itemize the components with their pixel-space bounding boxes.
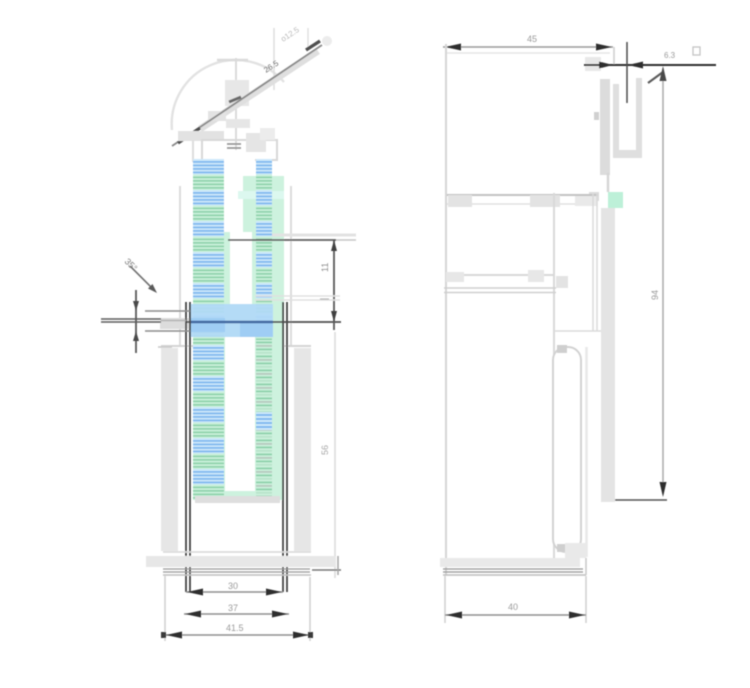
svg-text:56: 56 [320,445,330,455]
svg-text:94: 94 [650,290,660,300]
svg-text:41.5: 41.5 [226,623,244,633]
svg-text:37: 37 [228,603,238,613]
svg-text:40: 40 [508,602,518,612]
svg-text:o12.5: o12.5 [279,25,301,44]
svg-text:11: 11 [320,263,330,272]
svg-text:30: 30 [228,581,238,591]
svg-text:6.3: 6.3 [664,51,676,60]
svg-text:35°: 35° [123,256,140,273]
svg-text:45: 45 [527,34,537,44]
